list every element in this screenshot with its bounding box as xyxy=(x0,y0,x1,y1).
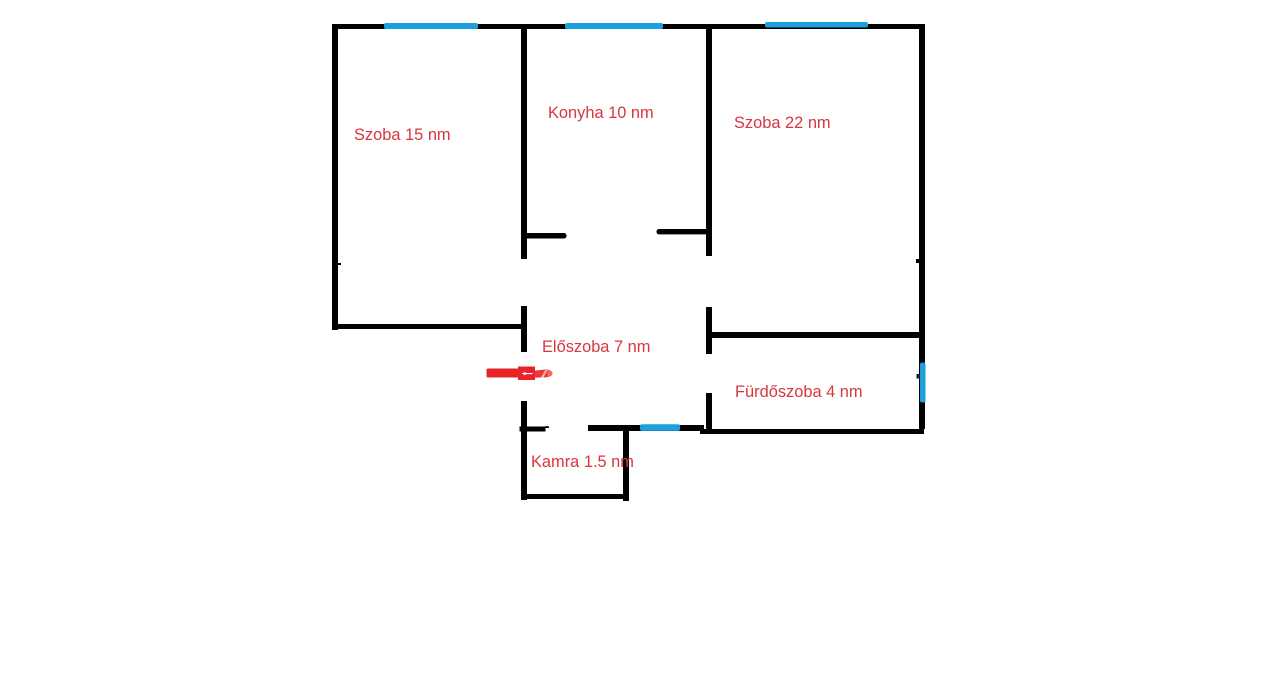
svg-text:Szoba 22 nm: Szoba 22 nm xyxy=(734,114,831,132)
svg-text:Konyha 10 nm: Konyha 10 nm xyxy=(548,104,654,122)
svg-text:Szoba 15 nm: Szoba 15 nm xyxy=(354,126,451,144)
svg-text:Kamra 1.5 nm: Kamra 1.5 nm xyxy=(531,453,634,471)
svg-text:Előszoba 7 nm: Előszoba 7 nm xyxy=(542,338,650,356)
svg-text:Fürdőszoba 4 nm: Fürdőszoba 4 nm xyxy=(735,383,863,401)
